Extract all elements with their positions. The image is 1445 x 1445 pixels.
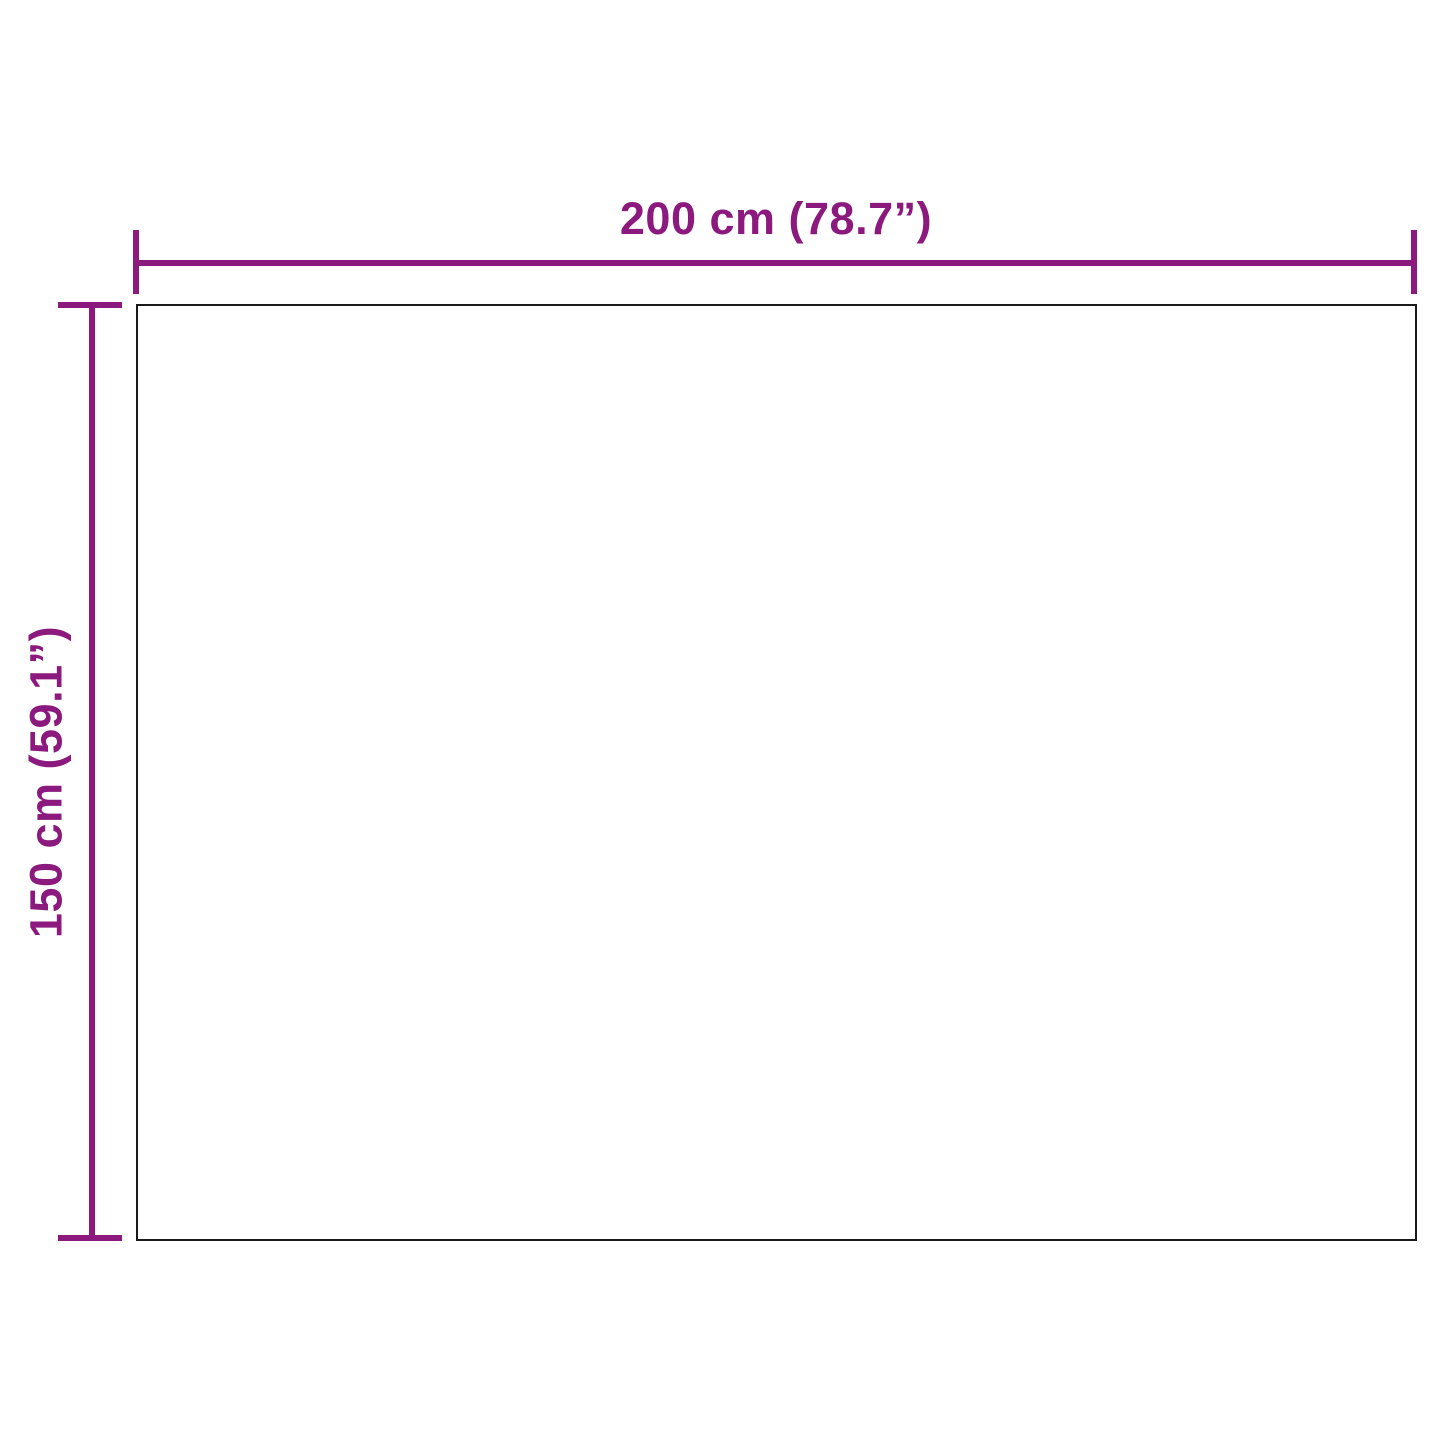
height-dimension-line — [89, 304, 95, 1241]
product-outline-rectangle — [136, 304, 1417, 1241]
dimension-diagram: 200 cm (78.7”) 150 cm (59.1”) — [0, 0, 1445, 1445]
width-dimension-right-tick — [1411, 230, 1417, 294]
height-dimension-bottom-tick — [58, 1235, 122, 1241]
height-dimension-top-tick — [58, 302, 122, 308]
width-dimension-label: 200 cm (78.7”) — [620, 196, 932, 241]
width-dimension-left-tick — [133, 230, 139, 294]
height-dimension-label: 150 cm (59.1”) — [24, 626, 69, 938]
width-dimension-line — [133, 260, 1417, 266]
